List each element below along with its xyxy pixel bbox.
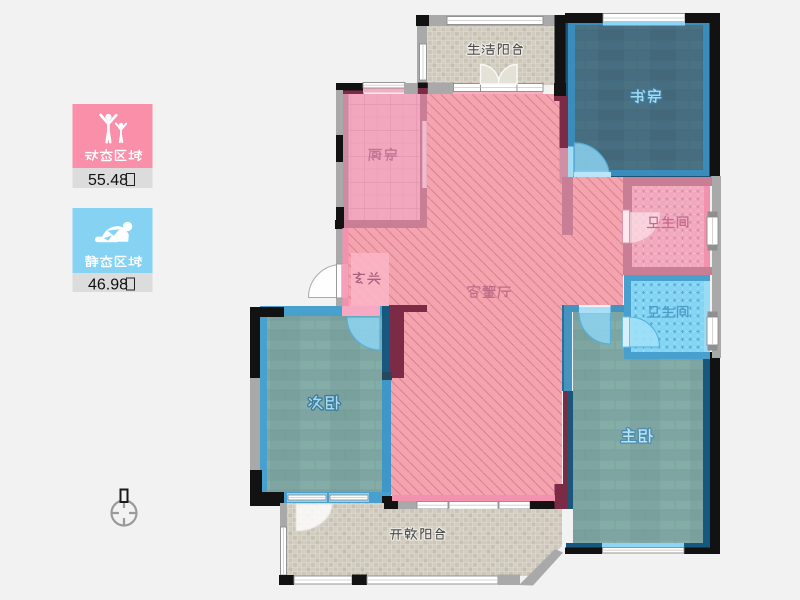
svg-text:55.48: 55.48 [88, 172, 128, 189]
svg-text:46.98: 46.98 [88, 277, 128, 294]
